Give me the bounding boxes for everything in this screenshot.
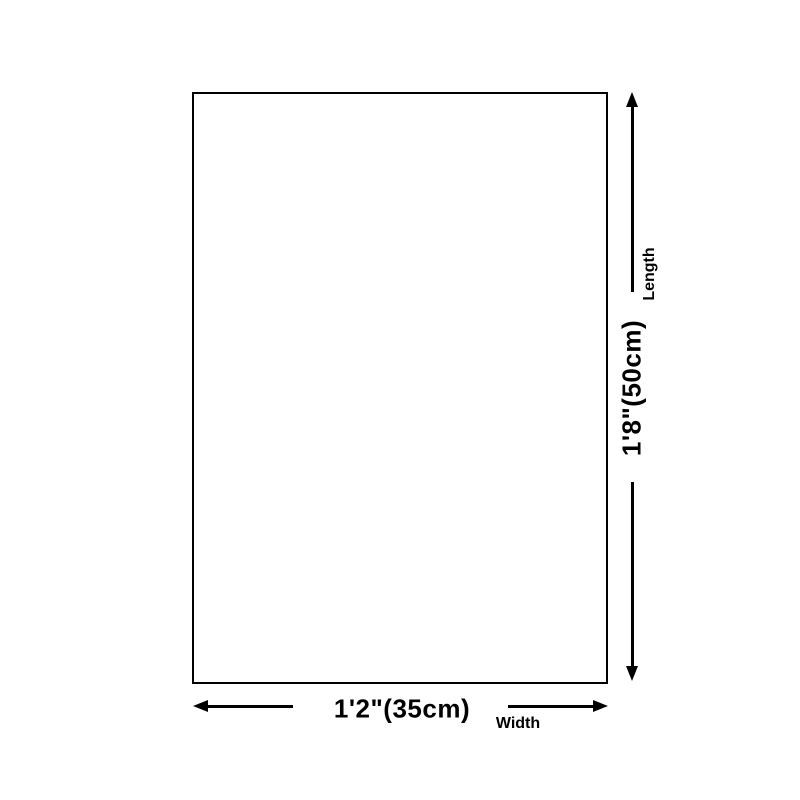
width-label: Width [496,715,540,733]
length-value: 1'8"(50cm) [617,320,648,456]
arrow-right-icon [593,700,608,712]
width-arrow-shaft-right [508,705,595,708]
length-arrow-shaft-top [631,104,634,292]
product-outline-rectangle [192,92,608,684]
arrow-down-icon [626,666,638,681]
diagram-stage: Length 1'8"(50cm) 1'2"(35cm) Width [0,0,800,800]
width-arrow-shaft-left [206,705,293,708]
length-label: Length [641,247,659,300]
dimension-diagram-page: { "page": { "background_color": "#ffffff… [0,0,800,800]
length-arrow-shaft-bottom [631,482,634,667]
width-value: 1'2"(35cm) [334,694,470,725]
